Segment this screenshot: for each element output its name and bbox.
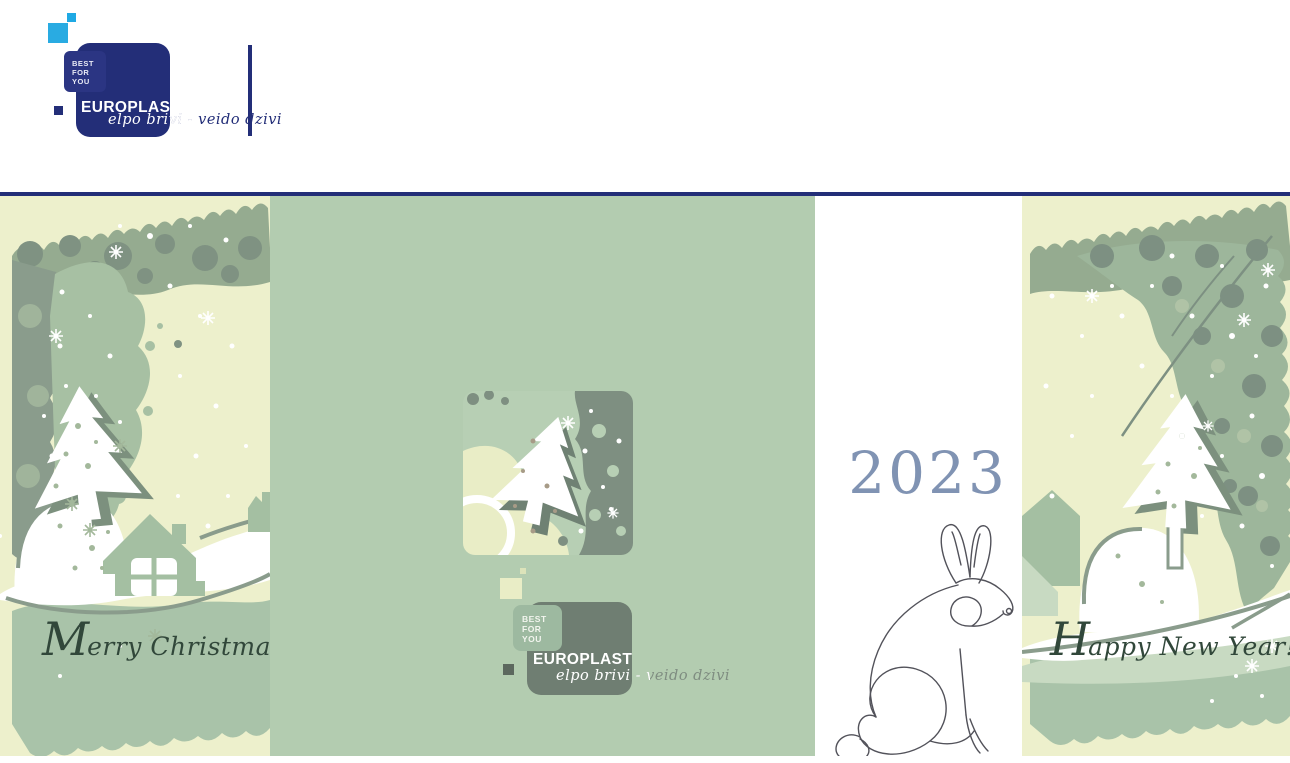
logo-divider-bar xyxy=(248,45,252,136)
logo-pale-square xyxy=(500,578,522,599)
mini-winter-photo xyxy=(463,391,633,555)
year-2023: 2023 xyxy=(848,439,1008,507)
logo-best-for-you-badge: BEST FOR YOU xyxy=(64,51,106,92)
logo-cyan-square-big xyxy=(48,23,68,43)
card-front-panel: Merry Christmas! xyxy=(0,196,270,756)
badge-line: YOU xyxy=(522,634,562,644)
house xyxy=(1022,490,1080,616)
logo-navy-square-small xyxy=(54,106,63,115)
rabbit-line-art xyxy=(825,521,1021,756)
card-spread: Merry Christmas! xyxy=(0,196,1290,756)
winter-scene-artwork xyxy=(0,196,270,756)
card-year-panel: 2023 xyxy=(815,196,1022,756)
greeting-card-page: BEST FOR YOU EUROPLAST elpo brivi - veid… xyxy=(0,0,1290,763)
badge-line: BEST xyxy=(522,614,562,624)
brand-name-gray: EUROPLAST xyxy=(533,651,632,669)
badge-line: FOR xyxy=(522,624,562,634)
card-center-panel: BEST FOR YOU EUROPLAST elpo brivi - veid… xyxy=(270,196,815,756)
happy-new-year-text: Happy New Year! xyxy=(1050,616,1290,662)
brand-tagline: elpo brivi - veido dzivi elpo brivi - ve… xyxy=(108,112,234,128)
logo-gray-square-tiny xyxy=(520,568,526,574)
logo-cyan-square-small xyxy=(67,13,76,22)
card-back-panel: Happy New Year! xyxy=(1022,196,1290,756)
logo-gray-best-for-you-badge: BEST FOR YOU xyxy=(513,605,562,651)
badge-line: FOR xyxy=(72,68,106,77)
brand-tagline-gray: elpo brivi - veido dzivi elpo brivi - ve… xyxy=(556,668,698,684)
badge-line: YOU xyxy=(72,77,106,86)
logo-gray-square-small xyxy=(503,664,514,675)
winter-scene-artwork xyxy=(1022,196,1290,756)
page-header: BEST FOR YOU EUROPLAST elpo brivi - veid… xyxy=(0,0,1290,196)
merry-christmas-text: Merry Christmas! xyxy=(42,616,270,662)
badge-line: BEST xyxy=(72,59,106,68)
